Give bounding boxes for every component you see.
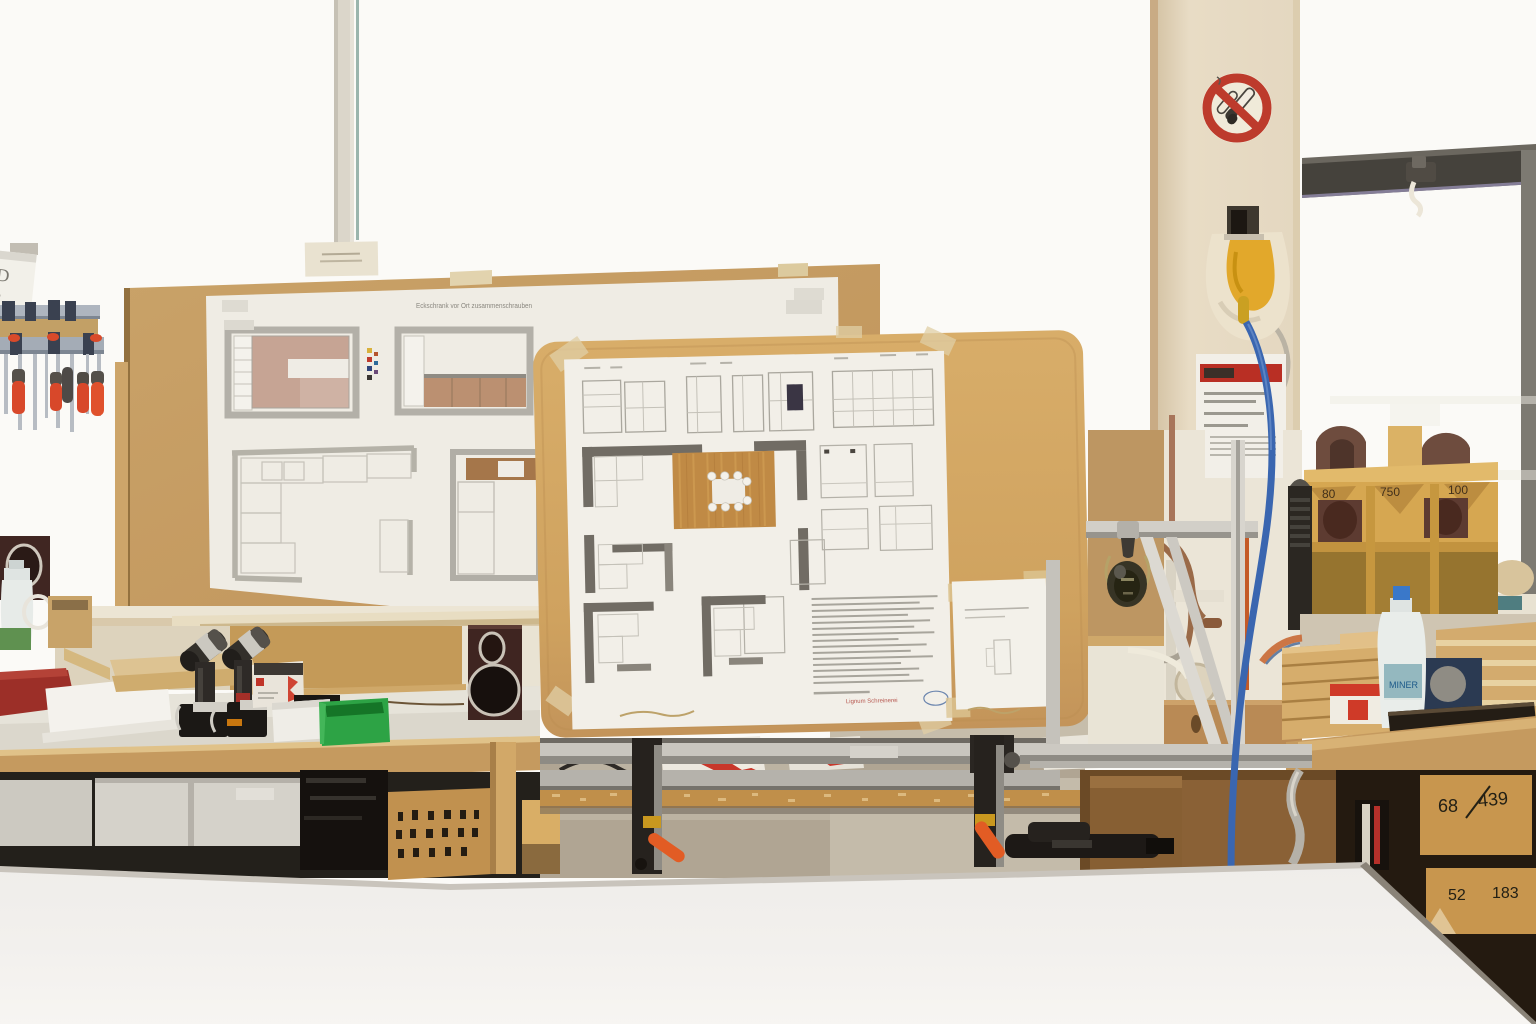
svg-text:80: 80 bbox=[1322, 487, 1336, 501]
svg-text:439: 439 bbox=[1477, 788, 1509, 811]
svg-text:Lignum Schreinerei: Lignum Schreinerei bbox=[846, 698, 898, 705]
svg-text:183: 183 bbox=[1492, 885, 1519, 902]
svg-text:MINER: MINER bbox=[1389, 680, 1419, 690]
svg-text:750: 750 bbox=[1380, 485, 1400, 499]
svg-text:52: 52 bbox=[1448, 887, 1466, 904]
svg-text:Eckschrank vor Ort zusammensch: Eckschrank vor Ort zusammenschrauben bbox=[416, 301, 532, 310]
svg-text:100: 100 bbox=[1448, 483, 1468, 497]
svg-text:68: 68 bbox=[1438, 796, 1458, 816]
